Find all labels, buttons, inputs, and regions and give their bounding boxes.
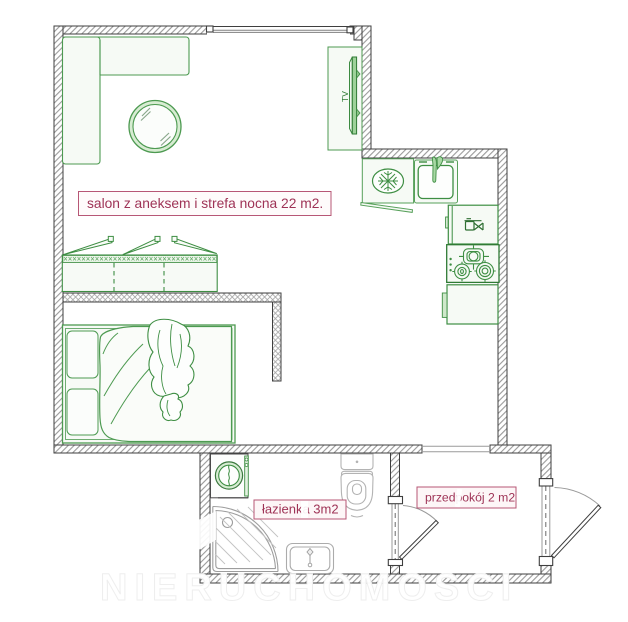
svg-text:łazienka 3m2: łazienka 3m2 xyxy=(262,502,339,517)
svg-text:NIERUCHOMOSCI: NIERUCHOMOSCI xyxy=(100,567,518,609)
svg-text:przedpokój 2 m2: przedpokój 2 m2 xyxy=(425,491,515,505)
svg-text:salon z aneksem i strefa nocna: salon z aneksem i strefa nocna 22 m2. xyxy=(87,196,323,211)
svg-text:TV: TV xyxy=(340,91,350,102)
